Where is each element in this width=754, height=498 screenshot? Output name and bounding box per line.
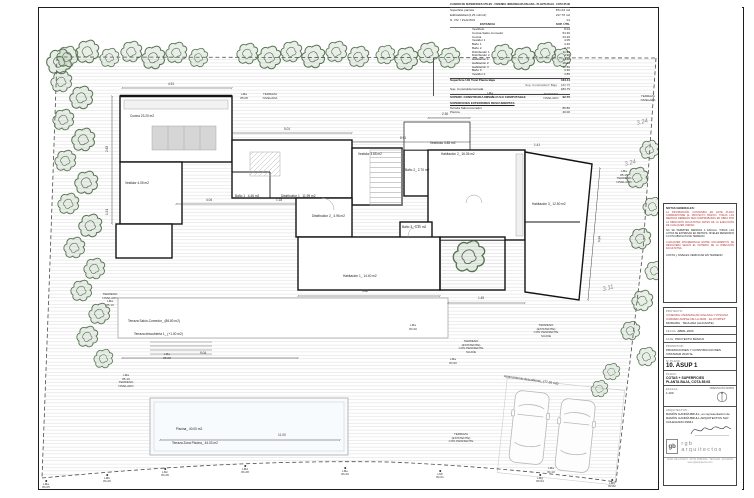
room-label: Distribuidor 2_ 4.96 m2	[312, 215, 345, 218]
architect-field: ARQUITECTOS: RAMÓN GANDÍA BRULL, en repr…	[664, 406, 736, 425]
survey-value: 84.26	[341, 473, 349, 476]
tree-icon	[637, 347, 656, 365]
notes-paragraph: LA INFORMACIÓN CONTENIDA EN ESTE PLANO C…	[666, 211, 734, 227]
survey-value: 83.82	[608, 485, 616, 488]
dimension-label: 11.00	[278, 434, 286, 437]
notes-paragraph: CUALQUIER DISCREPANCIA ENTRE DOCUMENTOS …	[666, 241, 734, 251]
notes-footer: COTAS y NIVELES VERIFICAR EN TERRENO	[666, 254, 734, 257]
survey-value: 84.26	[103, 480, 111, 483]
room-label: Baño 2_ 2.70 m2	[405, 169, 429, 172]
room-label: Terraza Salón-Comedor_ (86.80 m2)	[128, 320, 180, 323]
computable-row: SUPERF. CONSTRUIDA DE CÁLCULO COMPUTABLE…	[450, 94, 570, 100]
studio-name: rgb arquitectos	[681, 441, 734, 453]
terrain-label: LMa84.30	[409, 324, 417, 331]
dimension-label: 6.84	[598, 236, 602, 242]
survey-value: 84.28	[241, 471, 249, 474]
dimension-label: 4.51	[168, 83, 174, 86]
table-divider-line	[433, 58, 434, 96]
tree-icon	[640, 140, 659, 158]
phase-label: FASE:	[666, 338, 674, 341]
terrain-label: TERRENONIVELADOLMa85.10	[102, 293, 117, 307]
exterior-row: Terraza Salón-Comedor86.80	[450, 107, 570, 111]
room-label: Terraza descubierta 1_ (+1.00 m2)	[134, 333, 183, 336]
signature	[689, 425, 733, 437]
survey-point: LMc 84.28	[161, 468, 169, 478]
wardrobe	[516, 154, 523, 236]
date-value: ABRIL 2020	[677, 329, 693, 333]
dimension-label: 1.91	[106, 209, 109, 215]
dimension-label: 4.04	[206, 199, 212, 202]
room-label: Vestíbulo 3.85 m2	[430, 142, 456, 145]
room-label: Habitación 1_ 14.40 m2	[343, 275, 377, 278]
date-field: FECHA: ABRIL 2020	[664, 326, 736, 334]
terrain-label: TERRAZANIVELADA	[641, 95, 656, 102]
dimension-label: 1.45	[478, 297, 484, 300]
dimension-label: 2.30	[442, 113, 448, 116]
terrain-label: LMa84.90	[449, 358, 457, 365]
room-label: Vestidor 4.05 m2	[125, 182, 149, 185]
constructed-row: Sup. Construida Cerrada183.75	[450, 88, 570, 92]
survey-point: LMg 83.94	[536, 474, 544, 484]
room-label: Cocina 23.20 m2	[130, 115, 154, 118]
room-label: Baño 3_ 3.30 m2	[402, 226, 426, 229]
survey-point: LMf 84.01	[436, 470, 444, 480]
dimension-label: 8.91	[400, 137, 406, 140]
room-label: Habitación 2_ 16.36 m2	[441, 153, 475, 156]
scale-field: ESCALA: 1:100 ORIENTACIÓN NORTE	[664, 385, 736, 406]
dimension-label: 1.18	[276, 199, 282, 202]
survey-point: LMb 84.26	[103, 474, 111, 484]
terrain-label: TERRAZANIVELADA	[263, 93, 278, 100]
phase-field: FASE: PROYECTO BÁSICO	[664, 334, 736, 342]
table-total-row: Superficie Útil Total Planta Baja164.11	[450, 78, 570, 83]
terrain-label: LMa85.15TERRENONIVELADO	[616, 170, 631, 184]
project-line: CARRER AMPLE DE LA MAR · EL PORTET	[666, 317, 734, 321]
room-label: Distribuidor 1_ 11.99 m2	[281, 195, 316, 198]
terrain-label: LMa85.10TERRENONIVELADO	[118, 374, 133, 388]
rgb-logo-icon: gb	[666, 439, 678, 454]
studio-footer: AVDA. DE LA PAZ 5 · 03724 MORAIRA · TEUL…	[664, 457, 736, 465]
terrain-label: LMa84.10	[547, 467, 555, 474]
date-label: FECHA:	[666, 330, 677, 333]
plan-number-value: 10. ASUP 1	[666, 363, 734, 369]
notes-paragraph: NO SE PERMITEN MEDIDAS A ESCALA. TODAS L…	[666, 229, 734, 239]
room-label: Piscina_ 40.00 m2	[176, 428, 202, 431]
dimension-label: 1.41	[534, 144, 540, 147]
project-line: MORAIRA · TEULADA (ALICANTE)	[666, 321, 734, 325]
survey-point: LMe 84.26	[341, 467, 349, 477]
studio-website: www.rgbarquitectos.com	[664, 462, 736, 465]
studio-logo-row: gb rgb arquitectos	[664, 437, 736, 456]
notes-title: NOTAS GENERALES:	[666, 206, 734, 210]
exterior-row: Piscina40.00	[450, 111, 570, 115]
dimension-label: 9.04	[200, 352, 206, 355]
title-block: NOTAS GENERALES: LA INFORMACIÓN CONTENID…	[658, 7, 742, 490]
room-label: Vestidor 3.85 m2	[358, 153, 382, 156]
room-label: Baño 1_ 4.46 m2	[235, 195, 259, 198]
site-plan-drawing	[0, 0, 754, 498]
survey-value: 84.05	[42, 486, 50, 489]
tree-icon	[621, 321, 640, 339]
survey-point: LMh 83.82	[608, 479, 616, 489]
ramp-hatch	[250, 152, 280, 176]
terrain-label: TERRAZA(EXISTENTE)CON PENDIENTE	[449, 433, 474, 444]
survey-value: 84.01	[436, 476, 444, 479]
table-row: Vestidor 23.85	[450, 73, 570, 77]
north-compass-icon	[715, 390, 729, 404]
plan-number-field: Nº PLANO: 10. ASUP 1	[664, 357, 736, 370]
area-schedule-table: CUADRO DE SUPERFICIES ÚTILES · VIVIENDA …	[450, 3, 570, 115]
general-notes-box: NOTAS GENERALES: LA INFORMACIÓN CONTENID…	[663, 203, 737, 303]
dimension-label: 2.63	[106, 146, 109, 152]
survey-point: LMa 84.05	[42, 480, 50, 490]
scale-value: 1:100	[666, 391, 678, 395]
tree-icon	[630, 228, 651, 249]
plan-title-line: PLANTA BAJA, COTA 85.08	[666, 380, 734, 384]
client-field: PROMOTOR: PROMOCIONES Y CONSTRUCCIONES V…	[664, 342, 736, 357]
terrain-label: TERRENO(EXISTENTE)CON PENDIENTESUAVE	[534, 324, 559, 338]
phase-value: PROYECTO BÁSICO	[675, 337, 704, 341]
terrain-label: LMa85.08	[240, 93, 248, 100]
drawing-sheet: Cocina 23.20 m2Vestidor 4.05 m2Baño 1_ 4…	[0, 0, 754, 498]
terrain-label: LMa85.08	[163, 353, 171, 360]
stairs	[370, 150, 402, 205]
dimension-label: 5.01	[284, 128, 290, 131]
terrain-label: TERRENO(EXISTENTE)CON PENDIENTESUAVE	[459, 340, 484, 354]
plan-title-field: PLANO: COTAS + SUPERFICIES PLANTA BAJA, …	[664, 370, 736, 385]
tree-icon	[632, 290, 653, 311]
project-field: PROYECTO: VIVIENDA UNIFAMILIAR AISLADA Y…	[664, 308, 736, 326]
room-label: Terraza Zona Piscina_ 44.03 m2	[172, 442, 218, 445]
project-info-box: PROYECTO: VIVIENDA UNIFAMILIAR AISLADA Y…	[663, 307, 737, 486]
survey-value: 83.94	[536, 480, 544, 483]
client-value: PROMOCIONES Y CONSTRUCCIONES VISTAMAR 20…	[666, 348, 734, 356]
room-label: Habitación 3_ 12.50 m2	[532, 203, 566, 206]
architect-line: COLEGIADO 09941	[666, 420, 734, 424]
survey-point: LMd 84.28	[241, 465, 249, 475]
table-meta-row: N. VIV. / PLANTAS01	[450, 19, 570, 23]
project-line: VIVIENDA UNIFAMILIAR AISLADA Y PISCINA	[666, 313, 734, 317]
dimension-label: 5.82	[362, 290, 368, 293]
survey-value: 84.28	[161, 474, 169, 477]
